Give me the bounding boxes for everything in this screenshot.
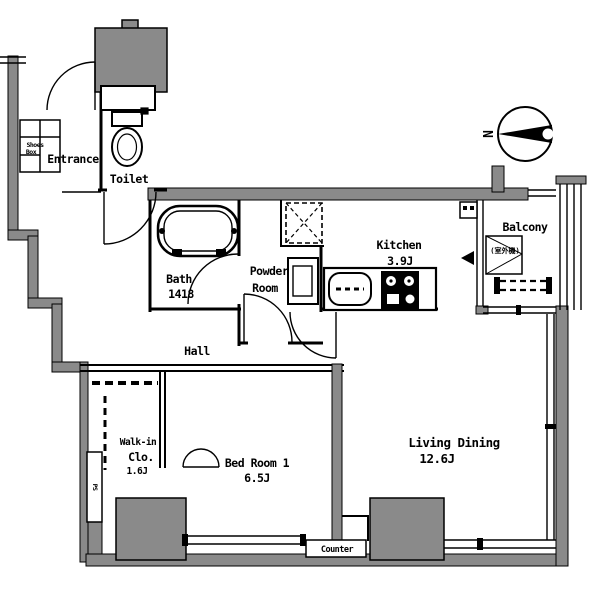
pillar-bottom-center bbox=[370, 498, 444, 560]
counter-label: Counter bbox=[321, 545, 354, 555]
balcony-partition bbox=[494, 277, 552, 294]
entrance-door bbox=[47, 62, 95, 110]
bath-door bbox=[188, 254, 238, 304]
toilet-fixture bbox=[112, 108, 148, 166]
refrigerator-nook-walls bbox=[281, 200, 324, 247]
living-dining-door bbox=[290, 312, 336, 358]
kitchen-label: Kitchen bbox=[377, 238, 423, 252]
equipment-box bbox=[460, 202, 477, 218]
refrigerator-space bbox=[286, 203, 322, 243]
vanity-basin bbox=[288, 258, 318, 304]
living-dining-size-label: 12.6J bbox=[419, 451, 454, 466]
floor-plan: N Entrance Shoes Box Toilet Bath 1418 Po… bbox=[0, 0, 600, 600]
balcony-label: Balcony bbox=[503, 220, 549, 234]
bedroom-label: Bed Room 1 bbox=[225, 456, 290, 470]
wic-label-1: Walk-in bbox=[120, 437, 157, 448]
wic-label-2: Clo. bbox=[128, 450, 154, 464]
entry-door-panel bbox=[101, 86, 155, 110]
bathtub bbox=[158, 206, 238, 256]
balcony-door-marker bbox=[461, 251, 474, 265]
kitchen-size-label: 3.9J bbox=[387, 254, 413, 268]
hall-label: Hall bbox=[184, 344, 210, 358]
bedroom-size-label: 6.5J bbox=[244, 471, 270, 485]
ac-outdoor-unit bbox=[486, 236, 522, 274]
toilet-label: Toilet bbox=[110, 172, 149, 186]
floor-plan-page: N Entrance Shoes Box Toilet Bath 1418 Po… bbox=[0, 0, 600, 600]
living-dining-label: Living Dining bbox=[408, 435, 499, 450]
compass: N bbox=[482, 107, 554, 161]
bedroom-door bbox=[183, 449, 219, 467]
pillar-top bbox=[95, 28, 167, 92]
powder-room-label-1: Powder bbox=[250, 264, 289, 278]
pillar-bottom-left bbox=[116, 498, 186, 560]
pipe-space-label: PS bbox=[91, 484, 99, 491]
shoes-box-label-2: Box bbox=[26, 148, 37, 156]
bath-size-label: 1418 bbox=[168, 287, 194, 301]
kitchen-counter bbox=[324, 268, 436, 310]
bedroom-ld-wall bbox=[332, 364, 342, 542]
bath-label: Bath bbox=[166, 272, 192, 286]
powder-room-door bbox=[244, 294, 292, 342]
entrance-label: Entrance bbox=[47, 152, 99, 166]
wic-size-label: 1.6J bbox=[127, 466, 148, 477]
compass-north-label: N bbox=[482, 130, 497, 138]
powder-room-label-2: Room bbox=[252, 281, 278, 295]
outdoor-unit-label: (室外機) bbox=[490, 246, 519, 255]
stove bbox=[381, 271, 419, 309]
